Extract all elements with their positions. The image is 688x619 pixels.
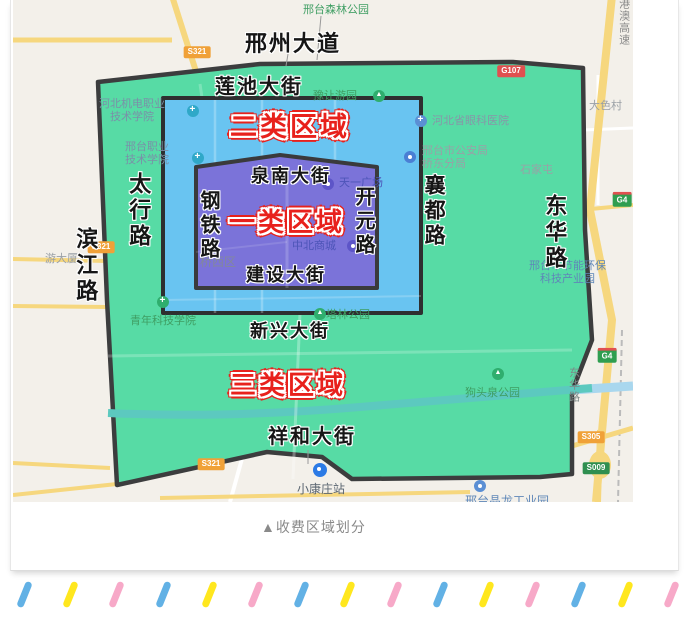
slash-mark [386, 581, 403, 609]
school-icon [192, 152, 204, 164]
zone-label-class2: 二类区域 [230, 112, 350, 143]
poi-label-zhongbei-mall: 中北商城 [292, 240, 336, 253]
poi-label-eye-hospital: 河北省眼科医院 [432, 115, 509, 128]
street-label-quannan-street: 泉南大街 [251, 166, 331, 187]
street-label-lianchi-street: 莲池大街 [215, 76, 303, 99]
badge-s321: S321 [184, 46, 211, 58]
zone-label-class1: 一类区域 [229, 208, 345, 238]
street-label-xinxing-street: 新兴大街 [250, 321, 330, 342]
badge-g4: G4 [613, 192, 632, 207]
badge-s009: S009 [583, 462, 610, 474]
poi-label-talin-park: 塔林公园 [326, 309, 370, 322]
slash-mark [478, 581, 495, 609]
slash-mark [155, 581, 172, 609]
badge-g107: G107 [497, 65, 525, 77]
poi-label-forest-park: 邢台森林公园 [303, 4, 369, 17]
decorative-border [0, 578, 688, 616]
zone-label-class3: 三类区域 [230, 371, 346, 401]
slash-mark [293, 581, 310, 609]
park-icon [492, 368, 504, 380]
street-label-xianghe-street: 祥和大街 [268, 426, 356, 449]
street-label-donghua-road: 东华路 [542, 194, 567, 272]
street-label-binjiang-road: 滨江路 [73, 227, 98, 305]
map-caption: ▲收费区域划分 [261, 517, 366, 537]
park-icon [314, 308, 326, 320]
poi-label-dasecun: 大色村 [589, 100, 622, 113]
slash-mark [571, 581, 588, 609]
slash-mark [247, 581, 264, 609]
poi-label-shijiatun: 石家屯 [520, 164, 553, 177]
street-label-taihang-road: 太行路 [126, 172, 151, 250]
fee-zone-map: 邢台森林公园 豫让游园 河北省眼科医院 河北机电职业 技术学院 邢台职业 技术学… [13, 0, 633, 502]
poi-label-yurang-garden: 豫让游园 [313, 90, 357, 103]
slash-mark [524, 581, 541, 609]
street-label-xingzhou-avenue: 邢州大道 [245, 31, 341, 56]
slash-mark [109, 581, 126, 609]
article-page: 邢台森林公园 豫让游园 河北省眼科医院 河北机电职业 技术学院 邢台职业 技术学… [0, 0, 688, 619]
poi-label-jidian-college: 河北机电职业 技术学院 [99, 98, 165, 123]
slash-mark [617, 581, 634, 609]
metro-station-icon [313, 463, 327, 477]
street-label-jianshe-street: 建设大街 [246, 265, 326, 286]
poi-label-xiaokang-station: 小康庄站 [297, 483, 345, 497]
badge-s305: S305 [578, 431, 605, 443]
school-icon [187, 105, 199, 117]
poi-label-goutouquan-park: 狗头泉公园 [465, 387, 520, 400]
street-label-gangtie-road: 钢铁路 [196, 190, 219, 262]
slash-mark [663, 581, 680, 609]
poi-label-industrial-park: 邢台晶龙工业园 [465, 495, 549, 502]
slash-mark [62, 581, 79, 609]
slash-mark [201, 581, 218, 609]
badge-g4: G4 [598, 348, 617, 363]
college-icon [157, 296, 169, 308]
poi-label-ecotech-park: 邢台市节能环保 科技产业园 [529, 260, 606, 285]
slash-mark [16, 581, 33, 609]
poi-label-expressway: 京港澳高速 [617, 0, 630, 46]
content-card: 邢台森林公园 豫让游园 河北省眼科医院 河北机电职业 技术学院 邢台职业 技术学… [10, 0, 679, 571]
hospital-icon [415, 115, 427, 127]
poi-label-donghua-road: 东华路 [567, 367, 580, 403]
street-label-xiangdu-road: 襄都路 [421, 174, 445, 249]
poi-label-youth-college: 青年科技学院 [130, 315, 196, 328]
street-label-kaiyuan-road: 开元路 [351, 186, 374, 258]
slash-mark [340, 581, 357, 609]
slash-mark [432, 581, 449, 609]
poi-label-xingtai-college: 邢台职业 技术学院 [125, 141, 169, 166]
industry-icon [474, 480, 486, 492]
park-icon [373, 90, 385, 102]
poi-label-police-bureau: 邢台市公安局 桥东分局 [422, 145, 488, 170]
police-icon [404, 151, 416, 163]
badge-s321: S321 [198, 458, 225, 470]
